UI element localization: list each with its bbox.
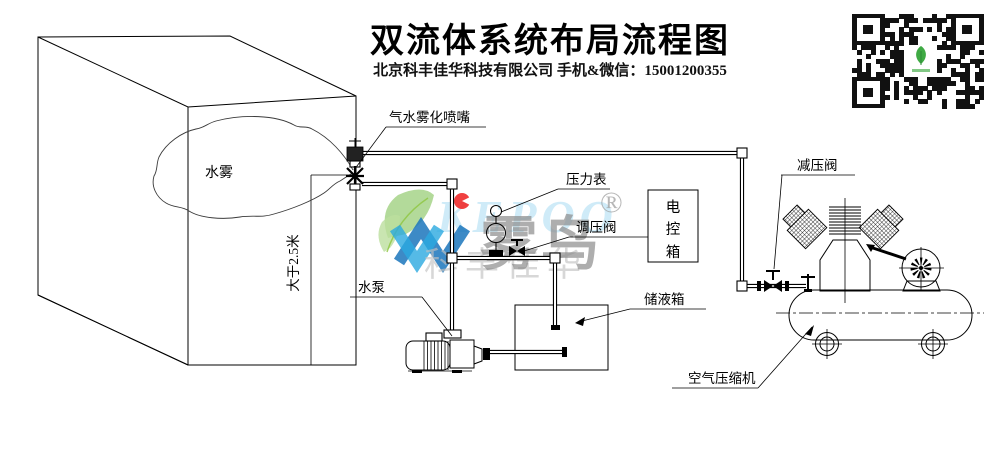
wheel: [812, 329, 842, 359]
control-box-char: 控: [666, 221, 681, 238]
wheel: [918, 329, 948, 359]
spray-cloud: 水雾: [153, 116, 353, 218]
water-pump-label: 水泵: [358, 280, 385, 295]
control-box: 电 控 箱: [648, 190, 698, 262]
control-box-char: 电: [666, 199, 681, 216]
nozzle-label: 气水雾化喷嘴: [389, 110, 470, 125]
pipe-tee: [447, 253, 457, 263]
pump-coupling: [483, 348, 490, 360]
brand-watermark: KEPOO 科丰佳华 雾鸟 ®: [378, 186, 622, 284]
dimension-label: 大于2.5米: [286, 234, 301, 292]
regulating-valve-label: 调压阀: [576, 220, 617, 235]
air-compressor-label: 空气压缩机: [688, 371, 756, 386]
water-pump-callout: 水泵: [350, 280, 452, 336]
tank-inlet-fitting: [801, 274, 815, 292]
water-pump: [406, 330, 490, 373]
liquid-tank-label: 储液箱: [644, 292, 685, 307]
diagram-canvas: 大于2.5米 水雾 KEPOO 科丰佳华 雾鸟 ®: [0, 0, 992, 460]
room-box: [38, 36, 356, 365]
registered-mark: ®: [600, 186, 623, 219]
pressure-relief-valve: [757, 271, 789, 292]
leader-arrowhead: [805, 325, 814, 336]
pipe-elbow: [447, 179, 457, 189]
compressor-cylinder-left: [779, 201, 826, 248]
pipe-end-cap: [551, 325, 560, 330]
leader-arrowhead: [575, 317, 585, 326]
mist-label: 水雾: [205, 165, 233, 181]
liquid-tank-callout: 储液箱: [575, 292, 706, 326]
pressure-gauge-label: 压力表: [566, 172, 607, 187]
air-compressor: [757, 198, 984, 359]
pipe-elbow: [550, 253, 560, 263]
compressor-motor: [899, 247, 944, 291]
pump-motor: [406, 341, 450, 370]
compressor-cylinder-right: [859, 201, 906, 248]
control-box-char: 箱: [666, 244, 681, 261]
pipe-elbow: [737, 281, 747, 291]
pipe-end-cap: [562, 347, 567, 357]
air-compressor-callout: 空气压缩机: [672, 325, 814, 388]
nozzle-callout: 气水雾化喷嘴: [354, 110, 486, 170]
drive-belt: [870, 247, 906, 259]
storage-tank: [515, 305, 608, 370]
pipe-elbow: [737, 148, 747, 158]
atomizing-nozzle: [346, 138, 364, 190]
compressor-tank: [789, 290, 972, 340]
dimension-line: 大于2.5米: [286, 175, 352, 365]
pipe-flange: [489, 250, 503, 256]
pump-head: [450, 340, 474, 368]
relief-valve-label: 减压阀: [797, 158, 838, 173]
